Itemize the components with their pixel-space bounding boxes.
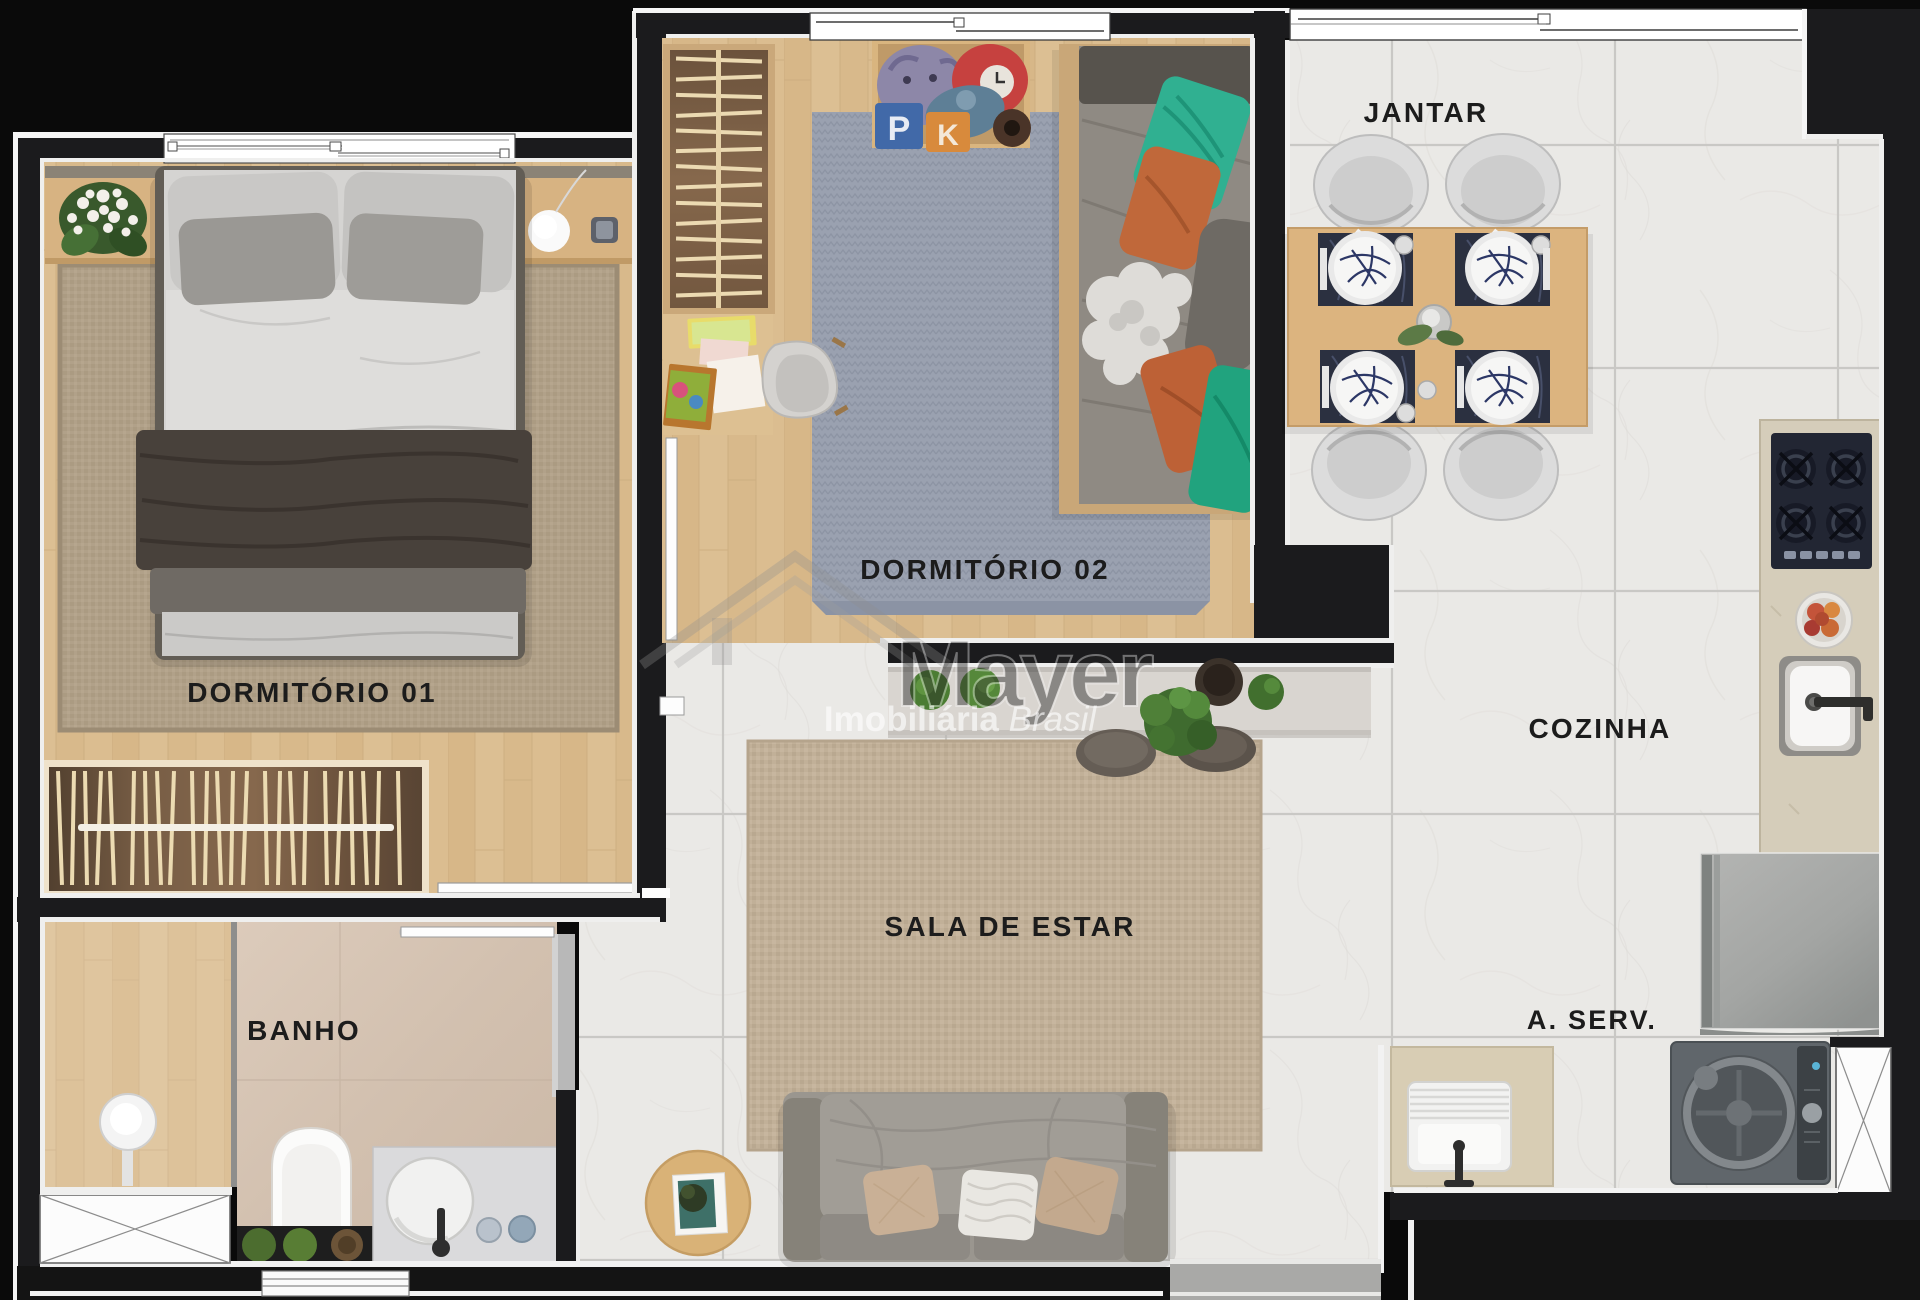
svg-text:Imobiliária Brasil: Imobiliária Brasil: [824, 700, 1098, 739]
svg-text:K: K: [937, 119, 959, 152]
svg-text:DORMITÓRIO 01: DORMITÓRIO 01: [187, 677, 437, 708]
svg-text:COZINHA: COZINHA: [1529, 713, 1672, 744]
svg-text:P: P: [888, 110, 911, 148]
svg-text:DORMITÓRIO 02: DORMITÓRIO 02: [860, 554, 1110, 585]
svg-text:SALA DE ESTAR: SALA DE ESTAR: [884, 911, 1135, 942]
svg-text:BANHO: BANHO: [247, 1015, 361, 1046]
svg-text:JANTAR: JANTAR: [1364, 97, 1489, 128]
svg-text:A. SERV.: A. SERV.: [1527, 1005, 1657, 1035]
